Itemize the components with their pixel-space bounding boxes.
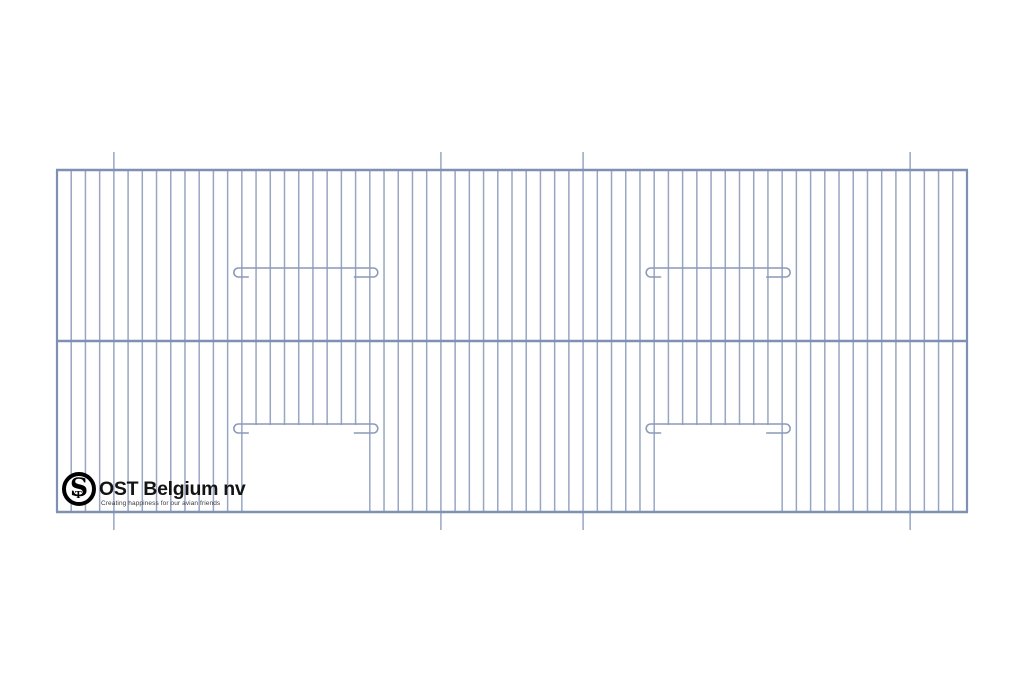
- cage-front-drawing: [0, 0, 1024, 683]
- drawing-canvas: S T OST Belgium nv Creating happiness fo…: [0, 0, 1024, 683]
- company-tagline: Creating happiness for our avian friends: [101, 500, 220, 507]
- company-name: OST Belgium nv: [99, 478, 245, 501]
- door-top-hook-wire: [234, 424, 378, 433]
- logo-monogram-small: T: [75, 492, 82, 501]
- ost-logo-icon: S T: [62, 472, 96, 506]
- door-top-hook-wire: [646, 424, 790, 433]
